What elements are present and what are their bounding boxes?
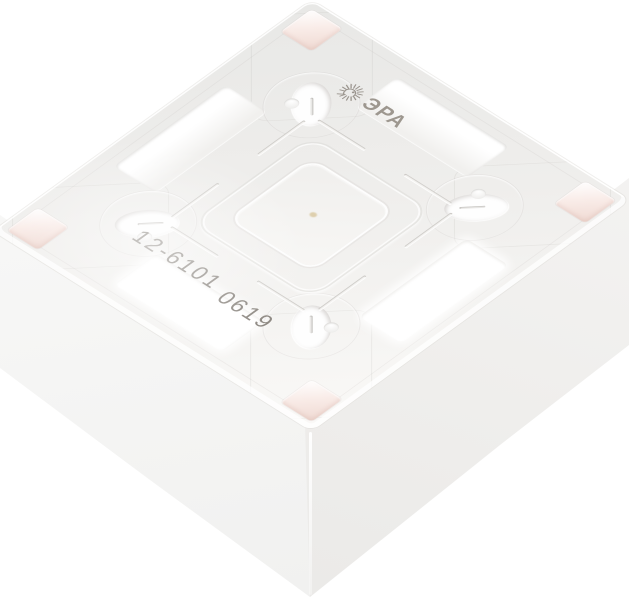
product-photo: 12-6101 0619 — [0, 0, 629, 600]
knockout-corner-slit — [310, 316, 313, 334]
wall-corner-edge-highlight — [309, 432, 312, 595]
knockout-corner-slit — [310, 98, 313, 116]
